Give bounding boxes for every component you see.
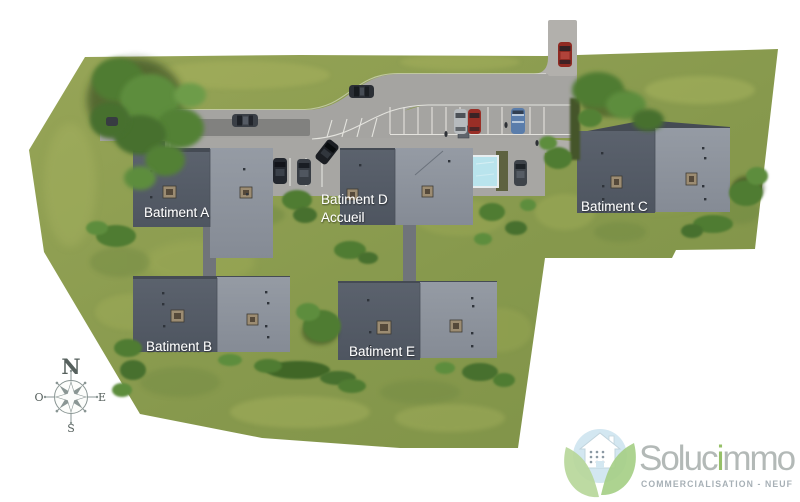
grass-patch bbox=[645, 76, 755, 104]
car-parked-silver bbox=[454, 109, 467, 134]
pool-area bbox=[471, 151, 508, 191]
compass-south-label: S bbox=[67, 422, 75, 435]
car-road-end-small bbox=[106, 117, 118, 126]
bush bbox=[681, 224, 703, 238]
building-d-label: Batiment D bbox=[321, 192, 388, 207]
grass-shade bbox=[90, 247, 150, 277]
bush bbox=[282, 190, 312, 210]
compass-east-label: E bbox=[98, 391, 106, 404]
walkway-d-e bbox=[403, 224, 416, 285]
site-plan-image: Batiment A Batiment B Batiment C Batimen… bbox=[0, 0, 800, 502]
grass-shade bbox=[380, 380, 460, 404]
bush bbox=[358, 252, 378, 264]
grass-patch bbox=[400, 54, 520, 70]
bush bbox=[505, 221, 527, 235]
bush bbox=[479, 203, 505, 221]
roof-light bbox=[395, 148, 473, 225]
bush bbox=[544, 147, 572, 169]
bush bbox=[114, 339, 142, 357]
logo-wordmark-suffix: mmo bbox=[722, 439, 794, 478]
compass-north-label: N bbox=[61, 354, 80, 379]
house-door bbox=[596, 461, 604, 468]
pedestrian bbox=[535, 140, 538, 146]
logo-tagline: COMMERCIALISATION - NEUF bbox=[641, 479, 793, 490]
compass-west-label: O bbox=[34, 391, 43, 404]
bush bbox=[746, 167, 768, 185]
hedge bbox=[570, 98, 580, 160]
compass-rose: N O E S bbox=[34, 354, 106, 435]
bush bbox=[86, 221, 108, 235]
bush bbox=[293, 207, 317, 223]
roof-light bbox=[210, 148, 273, 258]
tree-canopy bbox=[174, 83, 206, 107]
bush bbox=[462, 363, 498, 381]
car-red-entrance bbox=[558, 42, 572, 67]
bush bbox=[338, 379, 366, 393]
pedestrian bbox=[444, 131, 447, 137]
bush bbox=[120, 360, 146, 380]
grass-patch bbox=[230, 396, 370, 428]
car-on-road-west bbox=[232, 114, 258, 127]
grass-shade bbox=[594, 222, 646, 242]
bush bbox=[112, 383, 132, 397]
bush bbox=[474, 233, 492, 245]
roof-light bbox=[655, 128, 730, 212]
tree-canopy bbox=[632, 109, 664, 131]
bush bbox=[218, 354, 242, 366]
building-e-label: Batiment E bbox=[349, 344, 415, 359]
building-a-label: Batiment A bbox=[144, 205, 209, 220]
tree-canopy bbox=[124, 166, 156, 190]
bush bbox=[435, 362, 455, 374]
car-parked-blue bbox=[511, 108, 525, 134]
car-parked-red bbox=[468, 109, 481, 134]
grass-shade bbox=[140, 367, 220, 397]
car-on-road-east bbox=[349, 85, 374, 98]
bush bbox=[296, 303, 320, 321]
logo-solucimmo: Solucimmo COMMERCIALISATION - NEUF bbox=[564, 429, 795, 497]
logo-wordmark-prefix: Soluc bbox=[639, 439, 718, 478]
logo-wordmark: Solucimmo bbox=[639, 439, 795, 478]
bush bbox=[539, 136, 557, 150]
bush bbox=[578, 109, 602, 127]
bush bbox=[493, 373, 515, 387]
bush bbox=[254, 359, 282, 373]
car-parked-dark-2 bbox=[297, 159, 311, 185]
grass-patch bbox=[395, 404, 505, 432]
car-parked-dark-1 bbox=[273, 158, 287, 184]
pedestrian bbox=[504, 122, 507, 128]
building-b-label: Batiment B bbox=[146, 339, 212, 354]
swimming-pool bbox=[473, 157, 497, 186]
building-c-label: Batiment C bbox=[581, 199, 648, 214]
car-parked-pool bbox=[514, 160, 527, 186]
bush bbox=[520, 199, 536, 211]
building-d-sublabel: Accueil bbox=[321, 210, 365, 225]
